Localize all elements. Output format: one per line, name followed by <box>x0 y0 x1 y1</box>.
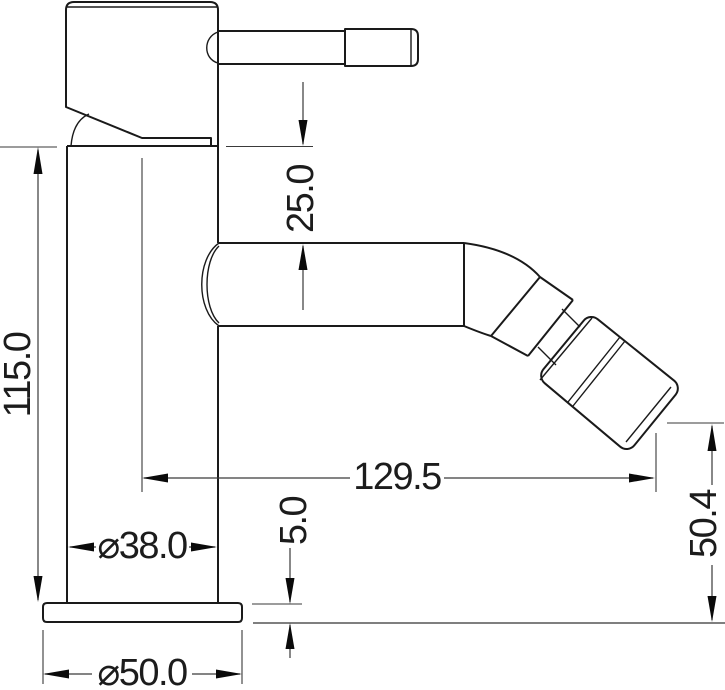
base-plate <box>43 603 242 622</box>
dim-label-handle-to-spout: 25.0 <box>280 165 322 233</box>
knurl-grip <box>345 29 418 66</box>
arrowhead-right <box>629 474 655 483</box>
spout-saddle-arc-outer <box>202 243 219 326</box>
arrowhead-left <box>43 670 69 679</box>
dim-spout-reach: 129.5 <box>142 158 656 498</box>
lever-fillet-arc <box>207 32 218 63</box>
arrowhead-right <box>216 670 242 679</box>
spray-head-ring-lines <box>568 337 625 406</box>
arrowhead-down <box>299 120 308 146</box>
spout-tube <box>219 243 464 326</box>
arrowhead-down <box>34 576 43 602</box>
spray-head-endcap-line <box>626 387 671 442</box>
dim-total-height: 115.0 <box>0 147 57 602</box>
dim-base-diameter: ⌀50.0 <box>43 630 242 690</box>
handle-body <box>66 2 218 146</box>
spout-saddle-arc-inner <box>207 246 219 323</box>
lever-arm <box>218 31 345 64</box>
dimensions: 115.0 25.0 129.5 50.4 <box>0 82 725 690</box>
spray-head <box>541 317 678 449</box>
arrowhead-up <box>286 623 295 649</box>
dim-handle-to-spout: 25.0 <box>226 82 322 310</box>
arrowhead-down <box>708 596 717 622</box>
technical-drawing-canvas: 115.0 25.0 129.5 50.4 <box>0 0 725 690</box>
arrowhead-right <box>191 543 217 552</box>
arrowhead-left <box>68 543 94 552</box>
pivot-dome-arc <box>71 114 89 146</box>
arrowhead-down <box>286 578 295 604</box>
arrowhead-up <box>34 147 43 174</box>
dim-label-base-diameter: ⌀50.0 <box>97 652 187 690</box>
dim-label-spout-reach: 129.5 <box>353 456 441 498</box>
dim-label-total-height: 115.0 <box>0 332 39 417</box>
arrowhead-left <box>142 474 168 483</box>
dim-label-base-thickness: 5.0 <box>273 496 315 545</box>
dim-base-thickness: 5.0 <box>252 496 315 658</box>
dim-outlet-height: 50.4 <box>667 423 725 622</box>
spray-head-collar-line <box>540 318 592 380</box>
spout-elbow <box>464 243 540 336</box>
arrowhead-up <box>299 244 308 270</box>
dim-label-outlet-height: 50.4 <box>683 489 725 558</box>
arrowhead-up <box>708 424 717 451</box>
spout-neck <box>491 277 573 356</box>
bidet-mixer-drawing: 115.0 25.0 129.5 50.4 <box>0 0 725 690</box>
dim-body-diameter: ⌀38.0 <box>68 525 217 567</box>
dim-label-body-diameter: ⌀38.0 <box>97 525 187 567</box>
